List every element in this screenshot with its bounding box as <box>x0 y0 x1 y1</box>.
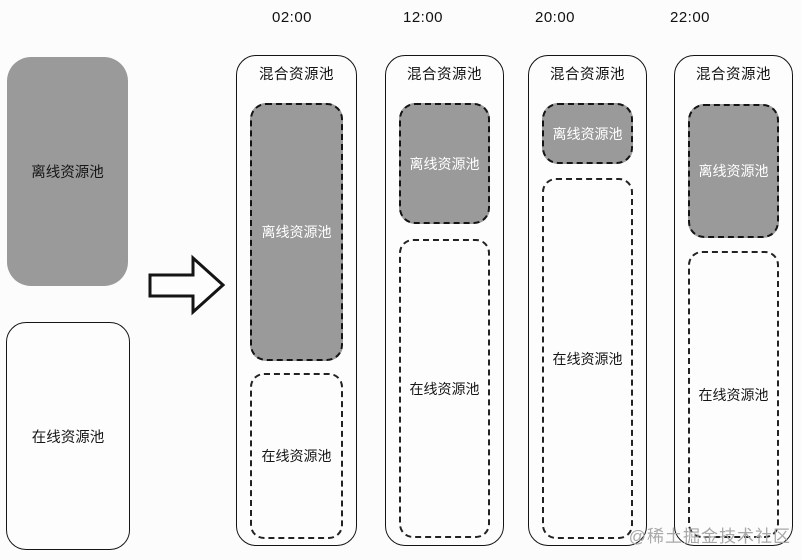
offline-pool-label: 离线资源池 <box>553 124 623 144</box>
offline-pool-label: 离线资源池 <box>410 154 480 174</box>
mixed-pool-column: 混合资源池 离线资源池 在线资源池 <box>528 55 647 546</box>
online-pool-label: 在线资源池 <box>410 379 480 399</box>
community-watermark: @稀土掘金技术社区 <box>629 522 791 547</box>
source-online-pool-label: 在线资源池 <box>32 426 105 447</box>
source-offline-pool-box: 离线资源池 <box>7 57 128 286</box>
mixed-pool-title: 混合资源池 <box>237 63 356 84</box>
offline-pool-label: 离线资源池 <box>262 222 332 242</box>
mixed-pool-column: 混合资源池 离线资源池 在线资源池 <box>236 55 357 546</box>
right-arrow-icon <box>140 248 235 323</box>
online-pool-label: 在线资源池 <box>262 446 332 466</box>
source-online-pool-box: 在线资源池 <box>6 322 130 550</box>
resource-pool-diagram: 02:00 12:00 20:00 22:00 离线资源池 在线资源池 混合资源… <box>0 0 802 560</box>
offline-pool-box: 离线资源池 <box>542 103 633 164</box>
mixed-pool-title: 混合资源池 <box>529 63 646 84</box>
time-label: 02:00 <box>272 9 312 26</box>
online-pool-box: 在线资源池 <box>250 373 343 539</box>
mixed-pool-title: 混合资源池 <box>675 63 792 84</box>
online-pool-box: 在线资源池 <box>399 239 490 538</box>
online-pool-label: 在线资源池 <box>699 385 769 405</box>
mixed-pool-column: 混合资源池 离线资源池 在线资源池 <box>385 55 504 546</box>
offline-pool-box: 离线资源池 <box>250 103 343 361</box>
online-pool-label: 在线资源池 <box>553 349 623 369</box>
offline-pool-box: 离线资源池 <box>688 104 779 238</box>
time-label: 22:00 <box>670 9 710 26</box>
mixed-pool-title: 混合资源池 <box>386 63 503 84</box>
source-offline-pool-label: 离线资源池 <box>31 161 104 182</box>
time-label: 12:00 <box>403 9 443 26</box>
online-pool-box: 在线资源池 <box>688 251 779 538</box>
mixed-pool-column: 混合资源池 离线资源池 在线资源池 <box>674 55 793 546</box>
online-pool-box: 在线资源池 <box>542 178 633 539</box>
offline-pool-box: 离线资源池 <box>399 103 490 224</box>
time-label: 20:00 <box>535 9 575 26</box>
offline-pool-label: 离线资源池 <box>699 161 769 181</box>
